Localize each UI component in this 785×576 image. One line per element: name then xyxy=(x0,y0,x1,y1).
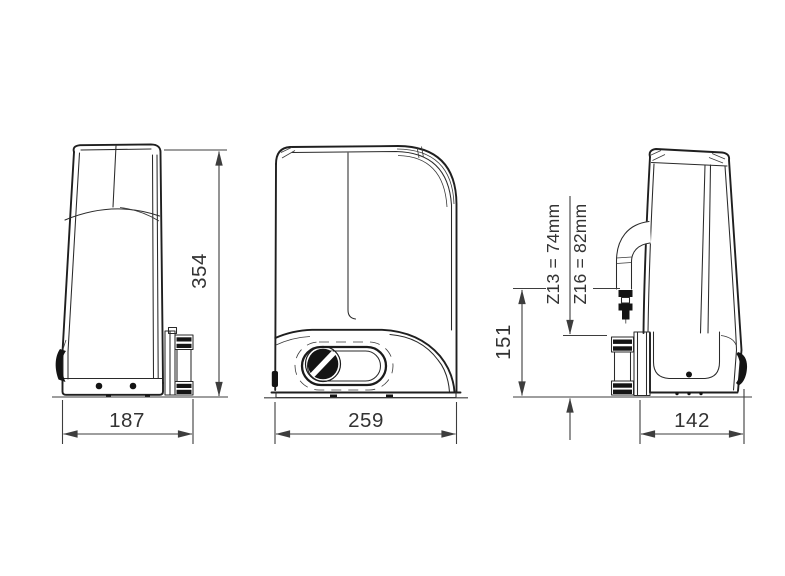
view-front: 259 xyxy=(264,146,468,444)
front-inner-line-3 xyxy=(398,156,447,208)
technical-drawing-page: 354 187 xyxy=(0,0,785,576)
right-view-cap-inner-top xyxy=(652,163,728,167)
left-view-pinion-assembly xyxy=(165,328,193,396)
right-view-u-cutout xyxy=(654,332,720,379)
right-view-lower-cover xyxy=(650,333,738,393)
right-view-cable-connector xyxy=(619,290,633,324)
view-side-right: 151 Z13 = 74mm Z16 = 82mm 142 xyxy=(492,149,752,444)
dimension-width-259: 259 xyxy=(275,402,457,444)
front-left-edge xyxy=(275,164,276,390)
left-view-baseplate xyxy=(63,383,164,395)
left-view-inner-edge-right2 xyxy=(153,155,154,378)
dim-label-354: 354 xyxy=(188,253,211,289)
right-view-seam-line-2 xyxy=(708,165,711,333)
pinion-tooth-band xyxy=(613,346,632,350)
front-center-seam xyxy=(348,153,356,319)
right-view-seam-line-1 xyxy=(701,165,706,333)
front-foot-2 xyxy=(386,395,393,398)
left-view-body-outline xyxy=(74,144,163,383)
dim-label-259: 259 xyxy=(348,409,384,432)
dimension-width-187: 187 xyxy=(63,399,194,444)
connector-collar xyxy=(622,298,630,304)
right-view-release-lever xyxy=(736,352,747,386)
left-view-screw-hole-1 xyxy=(96,383,103,390)
front-corner-hatch-2 xyxy=(282,151,295,159)
pinion-tooth-band xyxy=(613,390,632,394)
right-view-corner-hatch-2 xyxy=(653,155,666,161)
right-view-dot-1 xyxy=(675,392,678,395)
front-foot-1 xyxy=(330,395,337,398)
pinion-plate xyxy=(634,332,650,396)
gate-motor-dimension-drawing: 354 187 xyxy=(0,0,785,576)
dim-label-z16: Z16 = 82mm xyxy=(570,204,590,305)
front-release-hatch xyxy=(295,342,393,390)
pinion-tooth-band xyxy=(177,337,192,341)
dim-label-142: 142 xyxy=(674,409,710,432)
pinion-tooth-band xyxy=(177,344,192,348)
left-view-release-lever xyxy=(56,349,66,382)
pinion-shaft xyxy=(615,352,631,381)
right-view-dot-3 xyxy=(699,392,702,395)
right-view-dot-2 xyxy=(687,392,690,395)
dimension-height-354: 354 xyxy=(164,150,227,396)
pinion-shaft xyxy=(177,350,191,382)
left-view-cap-center-seam xyxy=(113,146,116,207)
front-lower-cover-inner-left xyxy=(276,337,310,346)
right-view-cover-transition xyxy=(721,336,736,346)
front-body-outline xyxy=(276,146,457,392)
view-side-left: 354 187 xyxy=(52,144,228,444)
pinion-tooth-band xyxy=(613,383,632,387)
left-view-screw-hole-2 xyxy=(130,383,137,390)
pinion-tooth-band xyxy=(177,390,192,394)
dim-label-z13: Z13 = 74mm xyxy=(543,204,563,305)
left-view-inner-edge-left xyxy=(68,153,80,379)
right-view-corner-hatch-3 xyxy=(712,154,725,160)
front-lower-cover-inner xyxy=(390,335,450,393)
pinion-tooth-band xyxy=(613,340,632,344)
right-view-left-edge xyxy=(644,157,651,333)
left-view-inner-edge-right1 xyxy=(157,155,158,378)
dim-label-151: 151 xyxy=(492,324,515,360)
right-view-corner-hatch-4 xyxy=(709,158,723,164)
connector-block-2 xyxy=(619,304,633,311)
front-side-lever-tab xyxy=(272,371,278,387)
right-view-cover-screw xyxy=(686,372,692,378)
right-view-body-outline xyxy=(650,149,742,391)
connector-tip xyxy=(622,311,630,320)
pinion-tooth-band xyxy=(177,384,192,388)
right-view-pinion-assembly xyxy=(612,332,651,396)
dimension-pinion-height: Z13 = 74mm Z16 = 82mm xyxy=(543,196,607,440)
connector-block-1 xyxy=(619,290,633,297)
dim-label-187: 187 xyxy=(109,409,145,432)
front-inner-line-1 xyxy=(292,152,452,331)
